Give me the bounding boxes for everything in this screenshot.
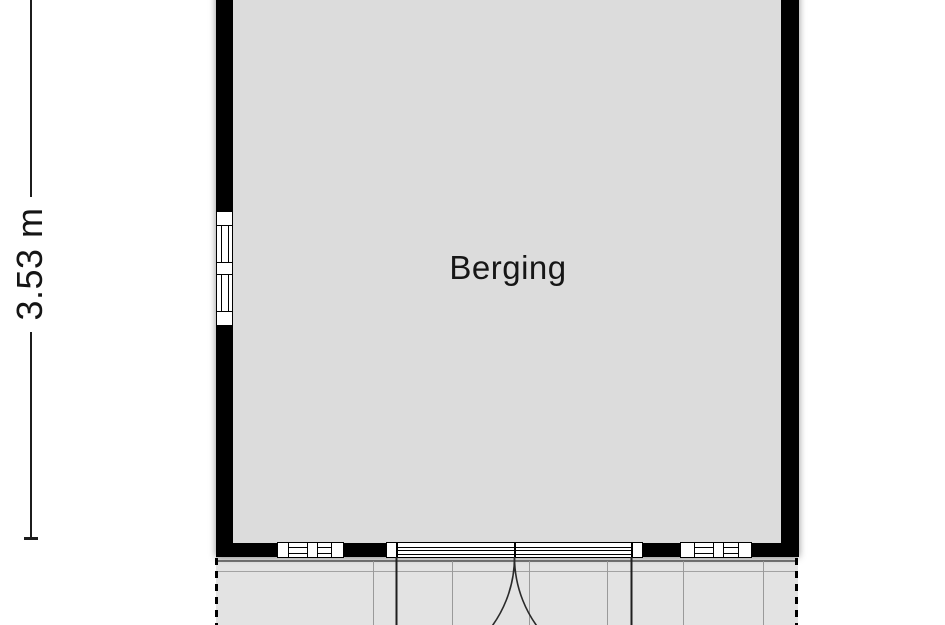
room-label: Berging	[449, 249, 566, 287]
window-frame-cap	[680, 542, 695, 558]
window-bottom-left	[277, 542, 344, 558]
window-frame-cap	[277, 542, 289, 558]
terrace-paving-line	[763, 561, 764, 625]
wall-left-upper	[216, 0, 233, 212]
window-frame-cap	[738, 542, 752, 558]
terrace-paving-line	[373, 561, 374, 625]
window-bottom-right	[680, 542, 752, 558]
terrace-inner-line	[216, 571, 798, 572]
door-jamb-right	[632, 542, 643, 558]
window-frame-cap	[216, 211, 233, 226]
window-mullion	[713, 542, 724, 558]
wall-right	[781, 0, 799, 557]
terrace-paving-line	[529, 561, 530, 625]
window-mullion	[216, 262, 233, 275]
window-frame-cap	[216, 311, 233, 326]
terrace-paving-line	[683, 561, 684, 625]
window-frame-cap	[331, 542, 344, 558]
double-door-panels	[397, 542, 632, 558]
dimension-line-upper	[30, 0, 32, 197]
terrace-edge-line	[216, 560, 798, 562]
window-left	[216, 211, 233, 326]
dimension-line-lower	[30, 332, 32, 538]
door-jamb-left	[386, 542, 397, 558]
dimension-label: 3.53 m	[9, 207, 51, 320]
terrace-paving-line	[607, 561, 608, 625]
terrace-area	[216, 557, 798, 625]
dimension-end-tick	[24, 537, 38, 540]
door-leaf-divider	[514, 542, 516, 558]
wall-left-lower	[216, 326, 233, 557]
terrace-boundary-dashed-right	[795, 558, 798, 625]
terrace-boundary-dashed-left	[215, 558, 218, 625]
floor-plan: 3.53 m	[0, 0, 945, 625]
terrace-paving-line	[452, 561, 453, 625]
window-mullion	[307, 542, 318, 558]
